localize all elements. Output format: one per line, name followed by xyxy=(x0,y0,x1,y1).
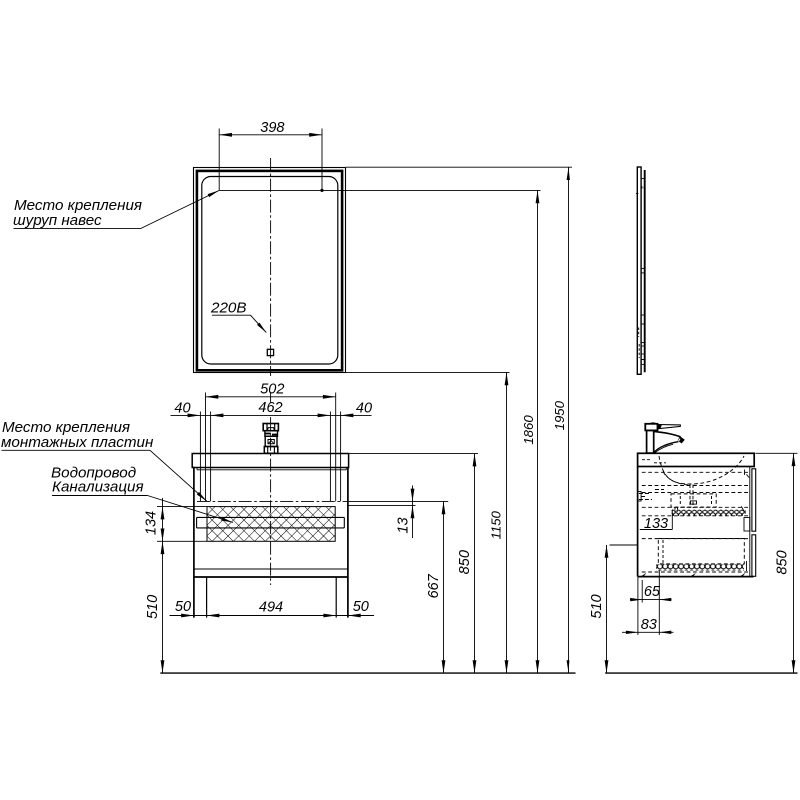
svg-text:398: 398 xyxy=(260,120,284,136)
svg-text:850: 850 xyxy=(774,550,790,574)
svg-text:1150: 1150 xyxy=(489,510,504,539)
svg-text:510: 510 xyxy=(589,594,605,618)
svg-text:494: 494 xyxy=(259,599,283,615)
svg-text:50: 50 xyxy=(353,599,369,615)
svg-text:220В: 220В xyxy=(210,300,246,317)
svg-text:шуруп навес: шуруп навес xyxy=(13,212,102,229)
svg-text:65: 65 xyxy=(644,584,661,600)
svg-text:40: 40 xyxy=(356,400,372,416)
svg-text:134: 134 xyxy=(144,511,160,535)
svg-text:502: 502 xyxy=(260,382,284,398)
svg-text:1950: 1950 xyxy=(552,400,567,430)
svg-text:50: 50 xyxy=(175,599,191,615)
svg-text:83: 83 xyxy=(641,617,657,633)
svg-text:1860: 1860 xyxy=(521,415,536,445)
svg-text:монтажных пластин: монтажных пластин xyxy=(1,434,154,451)
svg-text:40: 40 xyxy=(174,400,190,416)
svg-text:Канализация: Канализация xyxy=(52,479,144,496)
svg-text:850: 850 xyxy=(457,550,473,574)
svg-text:13: 13 xyxy=(396,517,412,533)
svg-text:510: 510 xyxy=(145,595,161,619)
svg-text:462: 462 xyxy=(258,400,282,416)
svg-text:667: 667 xyxy=(426,573,442,598)
